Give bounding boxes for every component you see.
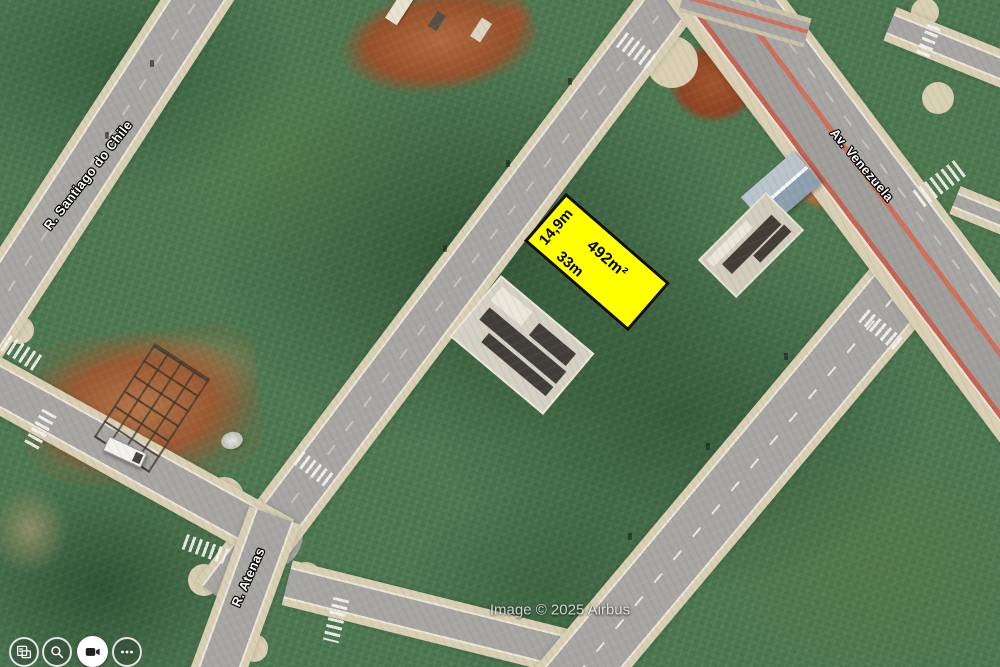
truck-cab <box>132 452 143 464</box>
roadside-pole <box>628 533 632 540</box>
roadside-pole <box>506 160 510 167</box>
roadside-pole <box>784 353 788 360</box>
roadside-pole <box>706 443 710 450</box>
roadside-pole <box>568 78 572 85</box>
video-icon <box>83 642 102 661</box>
satellite-map: 14,9m 492m² 33m R. Santiago do Chile Av.… <box>0 0 1000 667</box>
more-icon <box>118 643 136 661</box>
gallery-button[interactable] <box>9 637 39 667</box>
gallery-icon <box>15 643 33 661</box>
roadside-pole <box>150 60 154 67</box>
roadside-pole <box>443 245 447 252</box>
imagery-attribution: Image © 2025 Airbus <box>490 602 630 619</box>
video-button[interactable] <box>77 636 108 667</box>
search-button[interactable] <box>42 637 72 667</box>
search-icon <box>48 643 66 661</box>
curb-corner <box>922 82 954 114</box>
lot-area-label: 492m² <box>583 237 631 282</box>
more-button[interactable] <box>112 637 142 667</box>
